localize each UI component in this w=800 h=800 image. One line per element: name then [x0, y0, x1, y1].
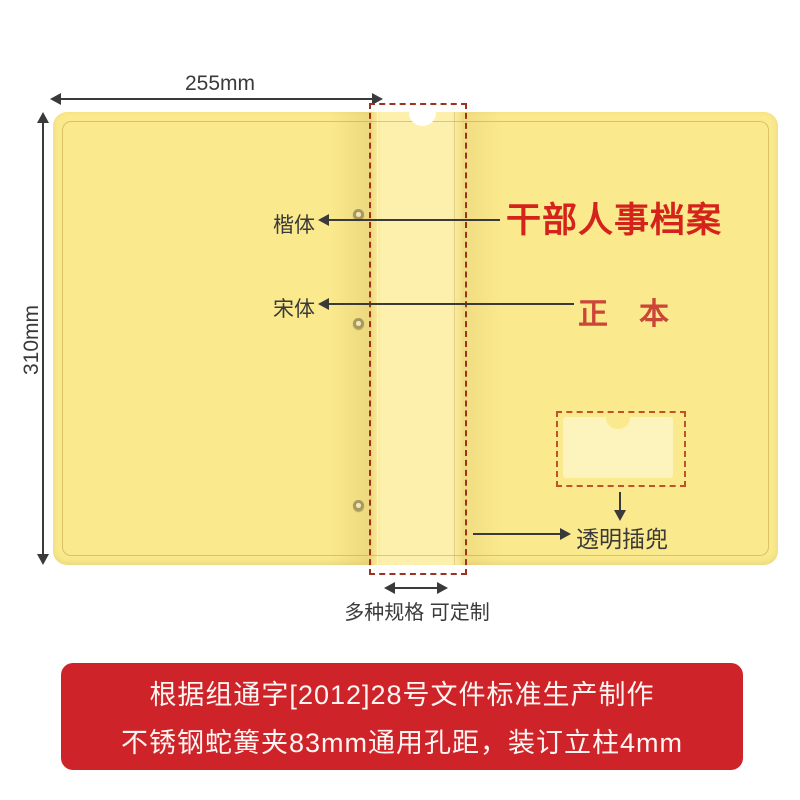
pocket-callout-hline	[473, 533, 561, 535]
rivet-hole-core	[356, 321, 361, 326]
rivet-hole-core	[356, 503, 361, 508]
height-dimension-line	[42, 122, 44, 555]
spine-dashed-outline	[369, 103, 467, 575]
pocket-callout-right-arrowhead-icon	[560, 528, 571, 540]
kai-font-label: 楷体	[240, 209, 315, 239]
product-diagram: 255mm 310mm 楷体 干部人事档案 宋体 正本 透明插兜 多种规格 可定…	[0, 0, 800, 800]
height-dimension-label: 310mm	[20, 300, 44, 380]
pocket-callout-vline	[619, 492, 621, 512]
pocket-dashed-outline	[556, 411, 686, 487]
info-banner: 根据组通字[2012]28号文件标准生产制作 不锈钢蛇簧夹83mm通用孔距，装订…	[61, 663, 743, 770]
song-callout-line	[329, 303, 574, 305]
song-font-label: 宋体	[240, 293, 315, 323]
spec-label: 多种规格 可定制	[332, 596, 502, 625]
kai-callout-arrowhead-icon	[318, 214, 329, 226]
spec-arrow-right-icon	[437, 582, 448, 594]
spec-arrow-line	[394, 587, 439, 589]
rivet-hole-core	[356, 212, 361, 217]
banner-line2: 不锈钢蛇簧夹83mm通用孔距，装订立柱4mm	[121, 721, 683, 760]
dimension-arrow-left-icon	[50, 93, 61, 105]
width-dimension-line	[61, 98, 372, 100]
width-dimension-label: 255mm	[170, 72, 270, 96]
rivet-hole	[353, 500, 364, 511]
rivet-hole	[353, 318, 364, 329]
kai-callout-line	[329, 219, 500, 221]
folder-subtitle-text: 正本	[578, 289, 700, 333]
banner-line1: 根据组通字[2012]28号文件标准生产制作	[149, 673, 654, 712]
folder-title-text: 干部人事档案	[506, 192, 736, 243]
song-callout-arrowhead-icon	[318, 298, 329, 310]
dimension-arrow-down-icon	[37, 554, 49, 565]
pocket-label: 透明插兜	[576, 520, 668, 554]
